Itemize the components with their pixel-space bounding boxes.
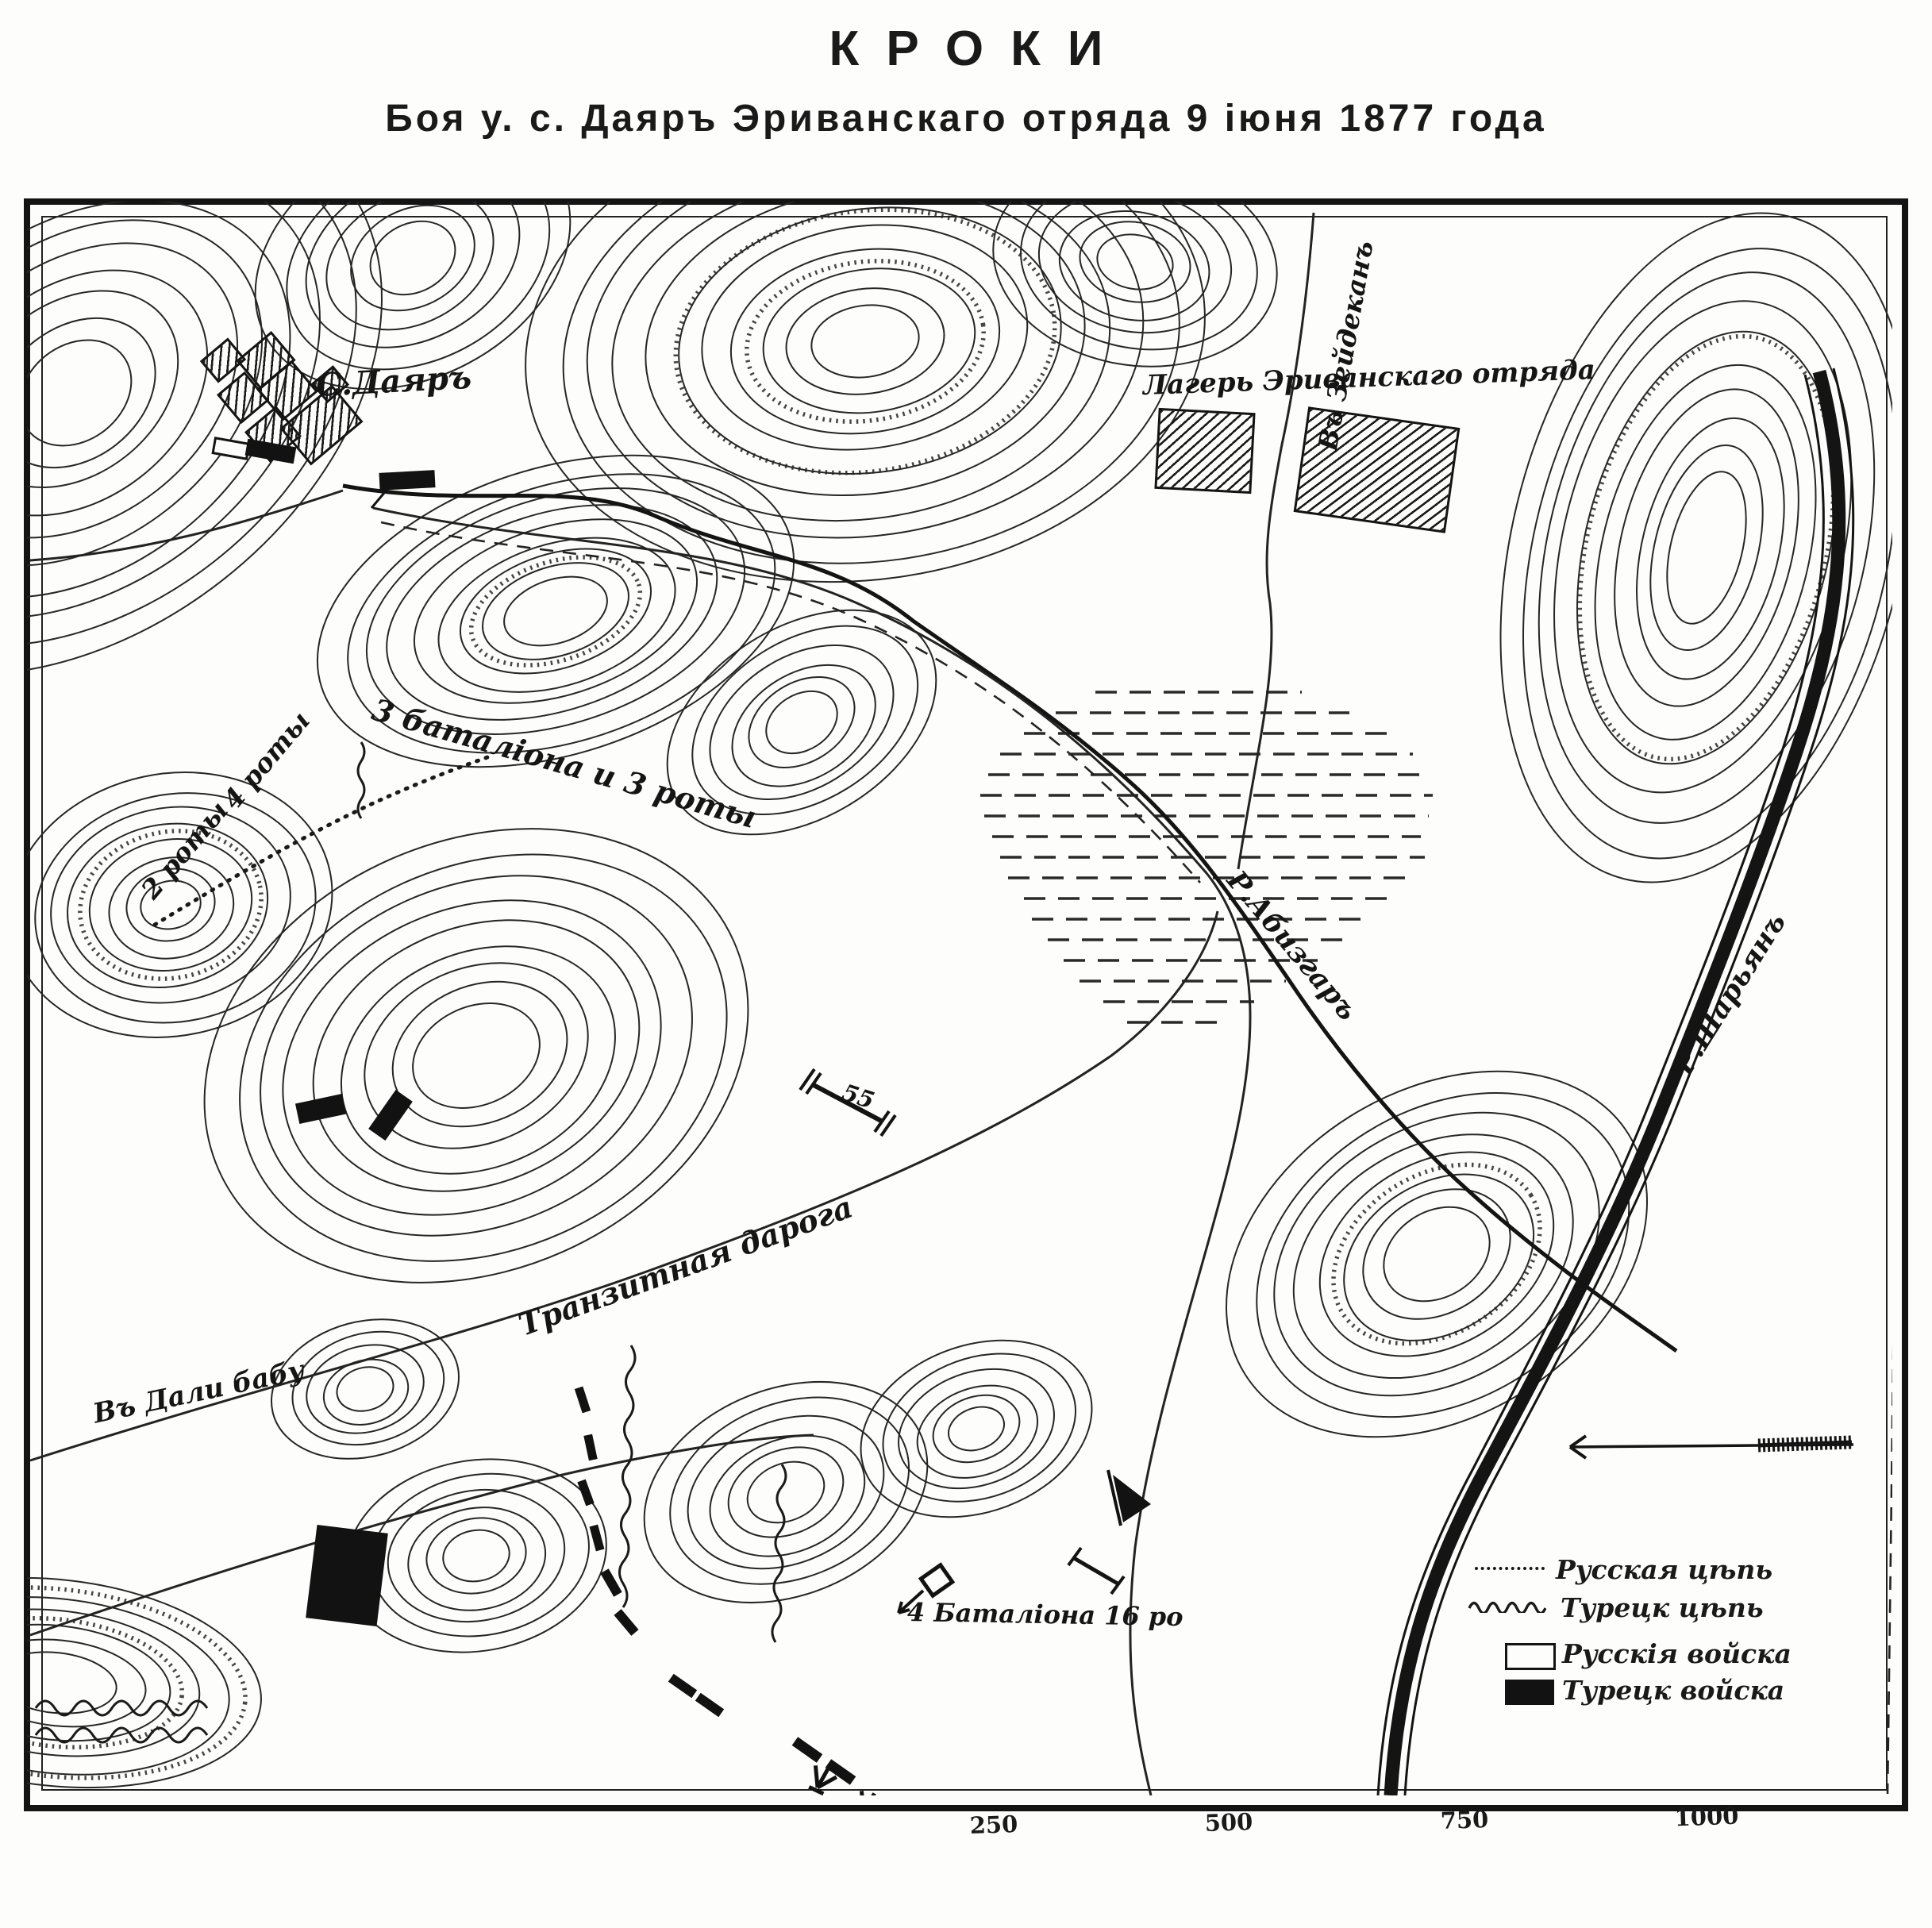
hill-west <box>27 743 357 1067</box>
river-abizgar <box>343 486 1676 1351</box>
legend-turkish-troops-label: Турецк войска <box>1562 1675 1784 1706</box>
fourth-battalion-label: 4 Баталіона 16 ро <box>907 1597 1183 1632</box>
road-to-dali-babu <box>30 1435 814 1635</box>
hill-top-center-east-bump <box>976 202 1294 388</box>
map-sheet: { "header": { "title": "КРОКИ", "subtitl… <box>0 0 1932 1928</box>
distance-measure-small <box>1068 1548 1124 1594</box>
marsh-area <box>980 692 1433 1022</box>
turkish-unit-bar <box>379 470 435 491</box>
legend-russian-troops-label: Русскія войска <box>1562 1638 1792 1669</box>
stream-zigzag-b <box>772 1464 786 1642</box>
hill-top-center-peak <box>494 202 1236 625</box>
hill-south-d <box>836 1310 1117 1548</box>
stream-zigzag-a <box>619 1345 635 1607</box>
scale-tick-750: 750 <box>1440 1806 1489 1834</box>
russian-troops-symbol <box>1505 1643 1556 1670</box>
road-to-zeydekan <box>1238 213 1314 869</box>
scale-tick-500: 500 <box>1204 1808 1253 1837</box>
turkish-troops-symbol <box>1505 1680 1554 1705</box>
hill-top-right <box>1435 202 1892 926</box>
turkish-unit-block <box>306 1525 388 1626</box>
map-subtitle: Боя у. с. Даяръ Эриванскаго отряда 9 іюн… <box>0 97 1932 140</box>
scale-tick-250: 250 <box>969 1811 1018 1839</box>
turkish-flag-mark <box>1108 1470 1151 1526</box>
north-arrow <box>1570 1436 1853 1458</box>
legend: Русская цѣпь Турецк цѣпь Русскія войска … <box>1467 1554 1800 1705</box>
scale-tick-1000: 1000 <box>1674 1803 1739 1832</box>
legend-russian-chain-label: Русская цѣпь <box>1556 1554 1772 1585</box>
hill-southeast-center <box>1159 996 1715 1512</box>
legend-turkish-chain-label: Турецк цѣпь <box>1561 1592 1764 1623</box>
camp-rect-west <box>1154 408 1255 494</box>
cavalry-glyph-b <box>852 1788 885 1795</box>
russian-chain-symbol <box>1475 1567 1545 1570</box>
map-title: КРОКИ <box>0 21 1932 77</box>
turkish-chain-symbol <box>1467 1595 1546 1613</box>
hill-center-east-bump <box>627 564 977 881</box>
